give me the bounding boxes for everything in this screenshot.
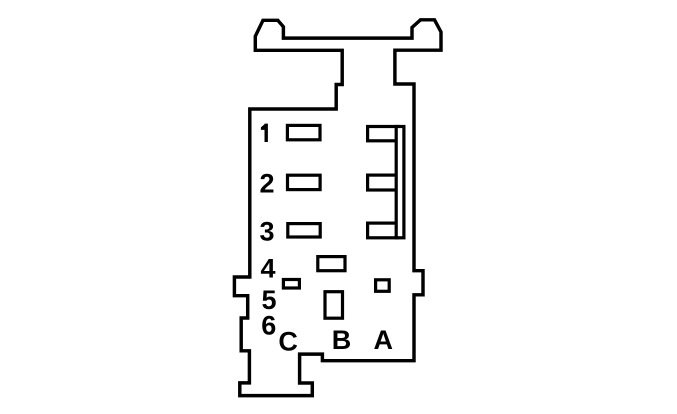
svg-text:2: 2 <box>260 168 275 198</box>
svg-text:A: A <box>374 325 394 355</box>
svg-text:B: B <box>332 325 352 355</box>
svg-text:3: 3 <box>260 216 275 246</box>
svg-text:4: 4 <box>261 253 276 283</box>
svg-text:C: C <box>278 326 298 356</box>
svg-text:6: 6 <box>261 311 276 341</box>
